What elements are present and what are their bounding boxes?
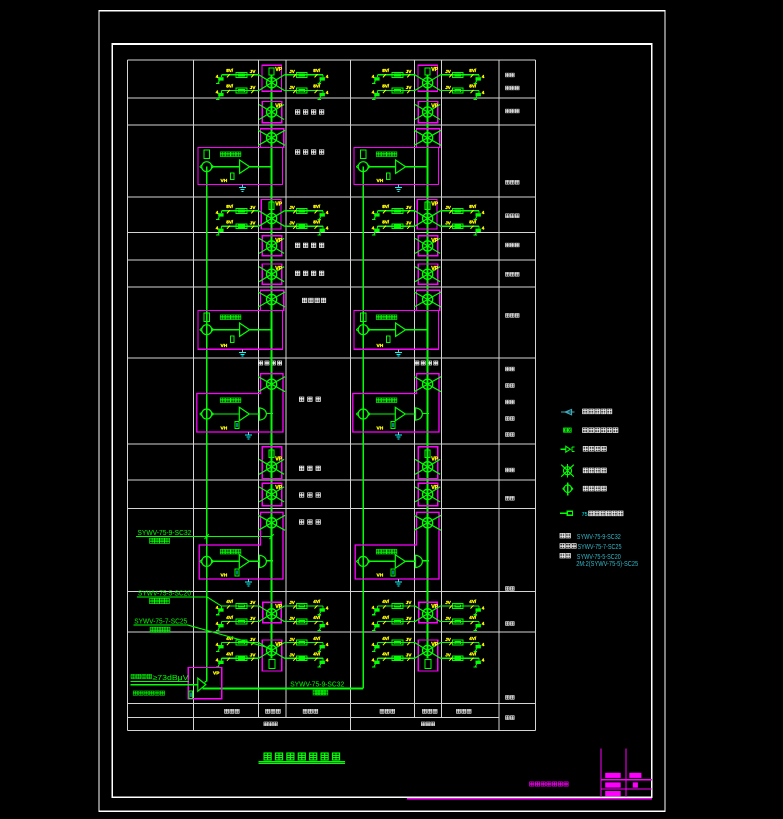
svg-text:JV: JV <box>406 653 413 658</box>
svg-text:VH: VH <box>377 425 384 431</box>
svg-text:4: 4 <box>482 642 485 647</box>
svg-text:JV: JV <box>445 600 452 605</box>
svg-text:JV: JV <box>289 85 296 90</box>
svg-text:VP: VP <box>431 266 438 272</box>
svg-text:SYWV-75-9-SC32: SYWV-75-9-SC32 <box>290 680 344 689</box>
svg-text:4: 4 <box>482 90 485 95</box>
svg-text:JV: JV <box>445 85 452 90</box>
svg-text:JV: JV <box>406 69 413 74</box>
svg-text:VP: VP <box>275 266 282 272</box>
svg-text:JV: JV <box>250 221 257 226</box>
svg-text:VP: VP <box>431 238 438 244</box>
svg-text:JV: JV <box>445 616 452 621</box>
svg-text:VP: VP <box>275 456 282 462</box>
svg-text:4V/: 4V/ <box>313 599 321 604</box>
svg-text:4: 4 <box>326 210 329 215</box>
svg-text:JV: JV <box>250 600 257 605</box>
svg-text:8V/: 8V/ <box>469 219 477 224</box>
svg-text:8V/: 8V/ <box>226 84 234 89</box>
svg-text:4: 4 <box>482 658 485 663</box>
svg-text:JV: JV <box>445 205 452 210</box>
svg-text:VP: VP <box>275 103 282 109</box>
svg-text:4: 4 <box>216 657 219 662</box>
svg-text:4V/: 4V/ <box>469 636 477 641</box>
svg-text:JV: JV <box>289 69 296 74</box>
svg-text:75: 75 <box>582 512 588 518</box>
svg-text:4: 4 <box>482 621 485 626</box>
svg-text:VP: VP <box>275 642 282 648</box>
svg-text:JV: JV <box>406 221 413 226</box>
svg-text:VP: VP <box>275 238 282 244</box>
svg-text:8V/: 8V/ <box>382 204 390 209</box>
svg-text:SYWV-75-7-SC25: SYWV-75-7-SC25 <box>134 616 187 625</box>
svg-text:4V/: 4V/ <box>226 651 234 656</box>
svg-text:4V/: 4V/ <box>469 615 477 620</box>
svg-text:4V/: 4V/ <box>382 636 390 641</box>
svg-text:VP: VP <box>431 642 438 648</box>
svg-text:4V/: 4V/ <box>382 599 390 604</box>
svg-text:4: 4 <box>372 225 375 230</box>
svg-text:JV: JV <box>250 205 257 210</box>
svg-text:4: 4 <box>482 226 485 231</box>
svg-text:8V/: 8V/ <box>469 204 477 209</box>
svg-text:4: 4 <box>216 210 219 215</box>
svg-text:JV: JV <box>289 653 296 658</box>
svg-text:8V/: 8V/ <box>382 84 390 89</box>
svg-text:8V/: 8V/ <box>313 84 321 89</box>
svg-text:8V/: 8V/ <box>469 68 477 73</box>
svg-text:VH: VH <box>221 343 228 349</box>
svg-text:JV: JV <box>445 221 452 226</box>
svg-text:4V/: 4V/ <box>226 599 234 604</box>
svg-text:VP: VP <box>431 485 438 491</box>
svg-text:4: 4 <box>326 621 329 626</box>
svg-text:4: 4 <box>216 90 219 95</box>
svg-text:4: 4 <box>216 225 219 230</box>
svg-text:JV: JV <box>406 205 413 210</box>
svg-text:JV: JV <box>406 616 413 621</box>
svg-text:JV: JV <box>289 637 296 642</box>
svg-text:VP: VP <box>431 604 438 610</box>
svg-text:4V/: 4V/ <box>226 615 234 620</box>
svg-text:JV: JV <box>445 653 452 658</box>
svg-text:VH: VH <box>377 343 384 349</box>
svg-text:JV: JV <box>250 85 257 90</box>
svg-text:VP: VP <box>275 604 282 610</box>
svg-text:8V/: 8V/ <box>313 219 321 224</box>
svg-text:VP: VP <box>275 485 282 491</box>
svg-text:4: 4 <box>216 621 219 626</box>
svg-text:8V/: 8V/ <box>226 204 234 209</box>
svg-text:JV: JV <box>406 600 413 605</box>
svg-text:4: 4 <box>326 605 329 610</box>
svg-text:8V/: 8V/ <box>469 84 477 89</box>
svg-text:4V/: 4V/ <box>382 615 390 620</box>
svg-text:JV: JV <box>445 69 452 74</box>
svg-text:VH: VH <box>221 572 228 578</box>
svg-text:VP: VP <box>275 67 282 73</box>
svg-text:JV: JV <box>289 600 296 605</box>
svg-text:4: 4 <box>372 657 375 662</box>
svg-text:4: 4 <box>482 605 485 610</box>
svg-text:VP: VP <box>431 456 438 462</box>
svg-text:8V/: 8V/ <box>226 219 234 224</box>
svg-text:JV: JV <box>250 616 257 621</box>
svg-text:JV: JV <box>289 616 296 621</box>
svg-text:JV: JV <box>289 221 296 226</box>
svg-text:SYWV-75-9-SC32: SYWV-75-9-SC32 <box>137 528 191 537</box>
svg-text:4: 4 <box>326 226 329 231</box>
svg-text:4: 4 <box>326 642 329 647</box>
svg-text:JV: JV <box>250 637 257 642</box>
svg-text:4V/: 4V/ <box>469 651 477 656</box>
svg-text:8V/: 8V/ <box>382 219 390 224</box>
svg-text:4: 4 <box>372 605 375 610</box>
svg-text:8V/: 8V/ <box>313 204 321 209</box>
svg-text:4: 4 <box>326 90 329 95</box>
svg-text:4: 4 <box>372 74 375 79</box>
svg-text:VH: VH <box>377 178 384 184</box>
svg-text:8V/: 8V/ <box>382 68 390 73</box>
svg-text:VH: VH <box>377 572 384 578</box>
svg-text:VP: VP <box>431 201 438 207</box>
svg-text:4: 4 <box>216 74 219 79</box>
svg-text:4: 4 <box>326 658 329 663</box>
svg-text:4V/: 4V/ <box>313 651 321 656</box>
svg-text:4V/: 4V/ <box>469 599 477 604</box>
svg-text:4V/: 4V/ <box>382 651 390 656</box>
svg-text:4: 4 <box>482 74 485 79</box>
svg-text:8V/: 8V/ <box>313 68 321 73</box>
svg-text:4V/: 4V/ <box>313 615 321 620</box>
svg-text:VP: VP <box>431 67 438 73</box>
svg-text:SYWV-75-7-SC25: SYWV-75-7-SC25 <box>578 544 622 551</box>
svg-text:SYWV-75-9-SC32: SYWV-75-9-SC32 <box>577 534 621 541</box>
svg-text:≥73dBμV: ≥73dBμV <box>153 673 189 682</box>
svg-text:VP: VP <box>431 103 438 109</box>
svg-text:4: 4 <box>372 621 375 626</box>
svg-text:4: 4 <box>482 210 485 215</box>
svg-text:SYWV-75-5-SC20: SYWV-75-5-SC20 <box>577 554 621 561</box>
svg-text:JV: JV <box>289 205 296 210</box>
svg-text:2M:2(SYWV-75-5)-SC25: 2M:2(SYWV-75-5)-SC25 <box>576 561 638 568</box>
svg-text:4: 4 <box>372 642 375 647</box>
svg-text:JV: JV <box>445 637 452 642</box>
svg-text:VH: VH <box>221 178 228 184</box>
svg-text:4: 4 <box>372 210 375 215</box>
svg-text:SYWV-75-5-SC20: SYWV-75-5-SC20 <box>138 588 191 597</box>
svg-text:VP: VP <box>213 671 220 677</box>
svg-text:4: 4 <box>216 642 219 647</box>
svg-text:JV: JV <box>250 69 257 74</box>
svg-text:4: 4 <box>326 74 329 79</box>
svg-text:VP: VP <box>275 201 282 207</box>
svg-text:JV: JV <box>406 637 413 642</box>
svg-text:4V/: 4V/ <box>313 636 321 641</box>
svg-text:JV: JV <box>250 653 257 658</box>
svg-text:8V/: 8V/ <box>226 68 234 73</box>
svg-text:4: 4 <box>372 90 375 95</box>
svg-text:VH: VH <box>221 425 228 431</box>
svg-text:JV: JV <box>406 85 413 90</box>
svg-text:4: 4 <box>216 605 219 610</box>
